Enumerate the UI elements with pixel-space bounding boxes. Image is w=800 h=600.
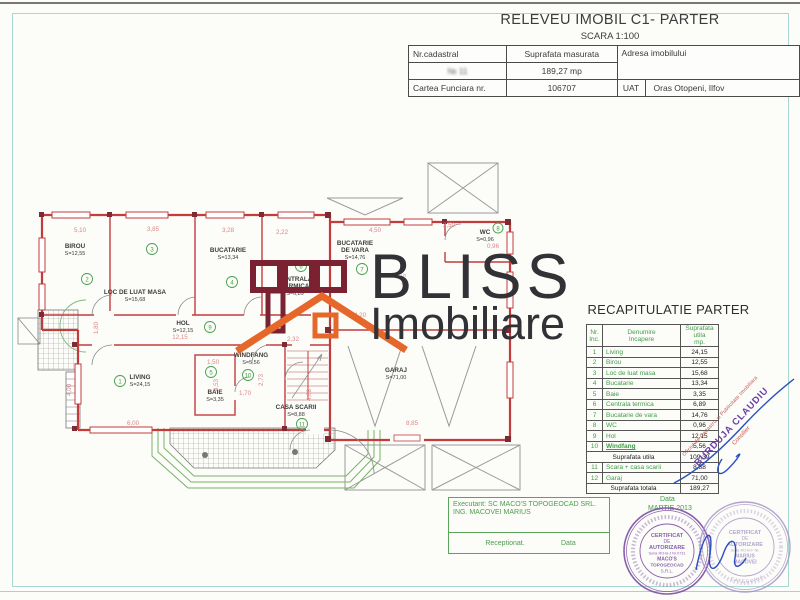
svg-text:S=71,00: S=71,00	[386, 375, 407, 381]
svg-text:8,85: 8,85	[406, 420, 419, 427]
svg-text:12,15: 12,15	[172, 334, 188, 341]
svg-text:BAIE: BAIE	[207, 389, 222, 396]
scan-edge-top	[0, 2, 800, 4]
garage-door	[394, 435, 420, 441]
room-label-loc-de-luat-masa: LOC DE LUAT MASA S=15,68 3	[104, 244, 167, 304]
uat-cell: UAT Oras Otopeni, Ilfov	[617, 80, 799, 97]
measured-value: 189,27 mp	[507, 63, 618, 80]
executant-box: Executant: SC MACO'S TOPOGEOCAD SRL. ING…	[448, 497, 610, 554]
svg-text:4,50: 4,50	[369, 227, 382, 234]
room-label-garaj: GARAJ S=71,00	[385, 367, 408, 381]
cadastral-label: Nr.cadastral	[409, 46, 507, 63]
svg-text:GARAJ: GARAJ	[385, 367, 408, 374]
data-label: Data	[561, 540, 609, 547]
room-label-birou: BIROU S=12,55 2	[65, 243, 93, 285]
terrace	[152, 428, 380, 488]
svg-text:6,00: 6,00	[127, 420, 140, 427]
svg-text:10: 10	[245, 374, 252, 380]
svg-text:2,22: 2,22	[276, 229, 289, 236]
svg-text:AUTORIZARE: AUTORIZARE	[727, 542, 763, 548]
svg-text:AUTORIZARE: AUTORIZARE	[649, 545, 685, 551]
svg-text:S=5,56: S=5,56	[242, 360, 260, 366]
svg-text:1,80: 1,80	[93, 321, 100, 334]
svg-text:2: 2	[85, 278, 89, 284]
svg-text:1,70: 1,70	[239, 390, 252, 397]
svg-text:2,50: 2,50	[443, 222, 456, 229]
header-table: Nr.cadastral Suprafata masurata Adresa i…	[408, 45, 800, 97]
recap-header-row: Nr. Inc. Denumire Incapere Suprafata uti…	[587, 325, 719, 347]
svg-text:CATEGORIA: CATEGORIA	[730, 574, 765, 584]
stamp-macovei: CERTIFICAT DE AUTORIZARE Seria RO-B-F Nr…	[700, 502, 790, 592]
svg-text:S=3,35: S=3,35	[206, 397, 224, 403]
svg-text:S=12,15: S=12,15	[173, 328, 194, 334]
svg-text:2,73: 2,73	[258, 373, 265, 386]
header-row-1: Nr.cadastral Suprafata masurata Adresa i…	[409, 46, 800, 63]
svg-text:S=15,68: S=15,68	[125, 297, 146, 303]
svg-text:S.R.L.: S.R.L.	[661, 569, 674, 574]
land-book-label: Cartea Funciara nr.	[409, 80, 507, 97]
address-label: Adresa imobilului	[617, 46, 799, 80]
scale-label: SCARA 1:100	[495, 31, 725, 42]
cadastral-value: № 11	[409, 63, 507, 80]
svg-text:4,08: 4,08	[306, 388, 313, 401]
room-label-casa-scarii: CASA SCARII S=8,88 11	[276, 404, 317, 430]
executant-line1: Executant: SC MACO'S TOPOGEOCAD SRL.	[449, 498, 609, 508]
svg-text:4,00: 4,00	[66, 383, 73, 396]
land-book-value: 106707	[507, 80, 618, 97]
svg-text:9: 9	[208, 326, 212, 332]
cadastral-number-redacted: № 11	[447, 66, 467, 76]
svg-text:CASA SCARII: CASA SCARII	[276, 404, 317, 411]
svg-text:WC: WC	[480, 229, 491, 236]
svg-text:1,50: 1,50	[207, 359, 220, 366]
page-title: RELEVEU IMOBIL C1- PARTER	[495, 12, 725, 28]
uat-value: Oras Otopeni, Ilfov	[646, 83, 799, 93]
svg-text:8: 8	[496, 227, 500, 233]
room-label-hol: HOL S=12,15 9	[173, 320, 216, 334]
svg-text:5,10: 5,10	[74, 227, 87, 234]
svg-text:S=24,15: S=24,15	[130, 382, 151, 388]
title-block: RELEVEU IMOBIL C1- PARTER SCARA 1:100	[495, 12, 725, 42]
room-label-living: LIVING S=24,15 1	[115, 374, 151, 388]
svg-text:LIVING: LIVING	[130, 374, 151, 381]
executant-line2: ING. MACOVEI MARIUS	[449, 508, 609, 516]
svg-text:3,85: 3,85	[147, 226, 160, 233]
measured-label: Suprafata masurata	[507, 46, 618, 63]
svg-text:3,28: 3,28	[222, 227, 235, 234]
certification-stamps: CERTIFICAT DE AUTORIZARE Seria RO-B-J Nr…	[608, 498, 800, 600]
svg-text:HOL: HOL	[176, 320, 189, 327]
svg-text:Seria RO-B-F Nr.: Seria RO-B-F Nr.	[731, 549, 760, 553]
registry-stamp-diagonal: Oficiul de Cadastru si Publicitate Imobi…	[660, 355, 800, 505]
recap-title: RECAPITULATIE PARTER	[571, 302, 766, 317]
uat-label: UAT	[618, 80, 646, 96]
svg-text:S=8,88: S=8,88	[287, 412, 305, 418]
receptionat-label: Receptionat.	[449, 540, 561, 547]
svg-text:S=12,55: S=12,55	[65, 251, 86, 257]
header-row-3: Cartea Funciara nr. 106707 UAT Oras Otop…	[409, 80, 800, 97]
recap-header-nr: Nr. Inc.	[587, 325, 603, 347]
svg-text:Seria RO-B-J Nr.0731: Seria RO-B-J Nr.0731	[649, 552, 686, 556]
svg-text:3: 3	[150, 248, 154, 254]
recap-header-area: Suprafata utila mp.	[681, 325, 719, 347]
stamp-topogeocad: CERTIFICAT DE AUTORIZARE Seria RO-B-J Nr…	[624, 508, 710, 594]
room-label-wc: WC S=0,96 8	[476, 223, 503, 243]
svg-text:BIROU: BIROU	[65, 243, 86, 250]
svg-text:5: 5	[209, 371, 213, 377]
svg-text:BURDUJA CLAUDIU: BURDUJA CLAUDIU	[692, 385, 771, 468]
svg-text:1: 1	[118, 380, 122, 386]
svg-text:TOPOGEOCAD: TOPOGEOCAD	[650, 563, 684, 568]
svg-text:LOC DE LUAT MASA: LOC DE LUAT MASA	[104, 289, 167, 296]
svg-text:11: 11	[299, 423, 306, 429]
watermark-imobiliare: Imobiliare	[370, 301, 565, 346]
recap-header-name: Denumire Incapere	[603, 325, 681, 347]
document-page: RELEVEU IMOBIL C1- PARTER SCARA 1:100 Nr…	[0, 0, 800, 600]
